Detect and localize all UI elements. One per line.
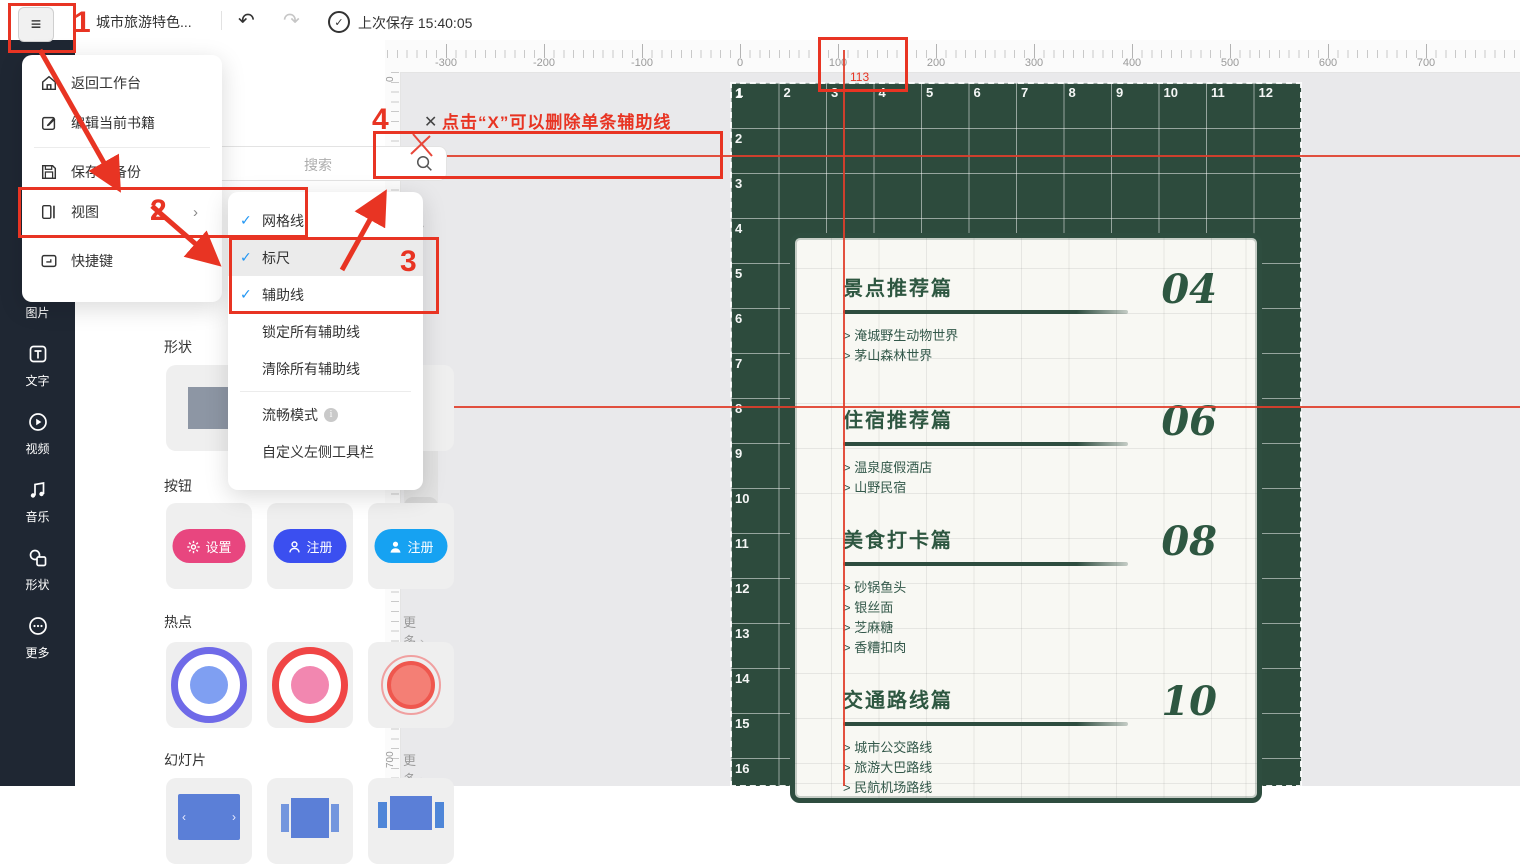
sidebar-item-3[interactable]: 音乐 — [0, 476, 75, 538]
toc-item: > 茅山森林世界 — [843, 346, 1211, 366]
ruler-label: 600 — [1319, 57, 1337, 69]
toc-section-0[interactable]: 景点推荐篇04> 淹城野生动物世界> 茅山森林世界 — [843, 272, 1211, 366]
close-icon[interactable]: ✕ — [424, 112, 437, 132]
grid-row-number: 16 — [735, 761, 749, 776]
ruler-major-tick — [1426, 44, 1427, 58]
grid-row-number: 6 — [735, 311, 742, 326]
toc-item: > 银丝面 — [843, 598, 1211, 618]
submenu-item-4[interactable]: 清除所有辅助线 — [228, 350, 423, 387]
toc-item: > 旅游大巴路线 — [843, 758, 1211, 778]
divider — [34, 147, 210, 148]
horizontal-ruler[interactable]: -300-200-1000100200300400500600700 — [385, 40, 1520, 73]
slide-thumb-3[interactable] — [368, 778, 454, 864]
grid-row-number: 7 — [735, 356, 742, 371]
brush-underline — [843, 722, 1128, 726]
edit-icon — [40, 114, 58, 132]
toc-section-title: 美食打卡篇 — [843, 524, 1211, 553]
grid-column-number: 5 — [926, 85, 933, 100]
ruler-major-tick — [838, 44, 839, 58]
poster-page[interactable]: 123456789101112 12345678910111213141516 … — [731, 83, 1301, 786]
toc-item: > 淹城野生动物世界 — [843, 326, 1211, 346]
toc-page-number: 08 — [1161, 518, 1217, 565]
toc-card[interactable]: 景点推荐篇04> 淹城野生动物世界> 茅山森林世界住宿推荐篇06> 温泉度假酒店… — [790, 233, 1262, 803]
hotspot-ring — [381, 655, 441, 715]
info-icon: i — [324, 408, 338, 422]
ruler-label: 700 — [385, 734, 397, 768]
section-label-buttons: 按钮 — [164, 476, 192, 496]
square-shape — [188, 387, 230, 429]
grid-column-number: 2 — [784, 85, 791, 100]
grid-column-number: 6 — [974, 85, 981, 100]
ruler-label: 300 — [1025, 57, 1043, 69]
grid-column-number: 7 — [1021, 85, 1028, 100]
button-thumb-2[interactable]: 注册 — [368, 503, 454, 589]
grid-row-number: 14 — [735, 671, 749, 686]
check-icon: ✓ — [240, 286, 262, 303]
toc-page-number: 04 — [1161, 266, 1217, 313]
undo-icon[interactable]: ↶ — [238, 8, 255, 33]
ruler-major-tick — [740, 44, 741, 58]
sidebar-item-label: 音乐 — [0, 508, 75, 525]
menu-item-label: 返回工作台 — [71, 73, 141, 93]
toc-section-title: 景点推荐篇 — [843, 272, 1211, 301]
keyboard-icon — [40, 252, 58, 270]
brush-underline — [843, 310, 1128, 314]
person-outline-icon — [287, 538, 301, 554]
submenu-item-0[interactable]: ✓网格线 — [228, 202, 423, 239]
divider — [221, 11, 222, 30]
ruler-major-tick — [544, 44, 545, 58]
ruler-minor-ticks — [387, 50, 1520, 58]
grid-row-number: 10 — [735, 491, 749, 506]
ruler-label: 200 — [927, 57, 945, 69]
grid-column-number: 8 — [1069, 85, 1076, 100]
submenu-item-label: 辅助线 — [262, 285, 304, 305]
music-icon — [0, 476, 75, 504]
ruler-major-tick — [936, 44, 937, 58]
video-icon — [0, 408, 75, 436]
home-icon — [40, 74, 58, 92]
divider — [240, 391, 411, 392]
chevron-right-icon: › — [193, 204, 198, 221]
submenu-item-6[interactable]: 自定义左侧工具栏 — [228, 433, 423, 470]
ruler-major-tick — [1328, 44, 1329, 58]
submenu-item-label: 网格线 — [262, 211, 304, 231]
menu-item-4[interactable]: 快捷键 — [22, 241, 222, 281]
brush-underline — [843, 442, 1128, 446]
submenu-item-label: 锁定所有辅助线 — [262, 322, 360, 342]
submenu-item-label: 自定义左侧工具栏 — [262, 442, 374, 462]
search-placeholder: 搜索 — [304, 155, 332, 175]
submenu-item-5[interactable]: 流畅模式i — [228, 396, 423, 433]
horizontal-guide-line[interactable] — [385, 406, 1520, 408]
toc-item: > 芝麻糖 — [843, 618, 1211, 638]
grid-row-number: 8 — [735, 401, 742, 416]
sidebar-item-label: 更多 — [0, 644, 75, 661]
toc-item: > 香糟扣肉 — [843, 638, 1211, 658]
submenu-item-3[interactable]: 锁定所有辅助线 — [228, 313, 423, 350]
sample-button: 注册 — [273, 529, 346, 563]
section-label-slides: 幻灯片 — [164, 750, 206, 770]
submenu-item-label: 标尺 — [262, 248, 290, 268]
submenu-item-label: 清除所有辅助线 — [262, 359, 360, 379]
grid-column-number: 10 — [1164, 85, 1178, 100]
person-icon — [388, 538, 402, 554]
menu-item-0[interactable]: 返回工作台 — [22, 63, 222, 103]
grid-column-number: 12 — [1259, 85, 1273, 100]
toc-item: > 温泉度假酒店 — [843, 458, 1211, 478]
grid-row-number: 11 — [735, 536, 749, 551]
ruler-label: -200 — [533, 57, 555, 69]
button-thumb-1[interactable]: 注册 — [267, 503, 353, 589]
document-title[interactable]: 城市旅游特色... — [96, 12, 192, 32]
ruler-label: 0 — [385, 48, 397, 82]
ruler-label: -300 — [435, 57, 457, 69]
toc-item: > 山野民宿 — [843, 478, 1211, 498]
save-icon — [40, 163, 58, 181]
hotspot-ring — [272, 647, 348, 723]
toc-item: > 砂锅鱼头 — [843, 578, 1211, 598]
toc-section-3[interactable]: 交通路线篇10> 城市公交路线> 旅游大巴路线> 民航机场路线 — [843, 684, 1211, 798]
last-saved-text: 上次保存 15:40:05 — [358, 13, 472, 33]
view-icon — [40, 203, 58, 221]
grid-row-number: 1 — [735, 86, 742, 101]
section-label-hotspots: 热点 — [164, 612, 192, 632]
menu-item-2[interactable]: 保存和备份 — [22, 152, 222, 192]
menu-item-label: 编辑当前书籍 — [71, 113, 155, 133]
gear-icon — [186, 538, 200, 554]
main-dropdown-menu: 返回工作台编辑当前书籍保存和备份视图›快捷键 — [22, 55, 222, 302]
guide-position-label: 113 — [850, 70, 869, 84]
sidebar-item-label: 形状 — [0, 576, 75, 593]
shape-icon — [0, 544, 75, 572]
menu-item-label: 保存和备份 — [71, 162, 141, 182]
sidebar-item-4[interactable]: 形状 — [0, 544, 75, 606]
hotspot-thumb-blue[interactable] — [166, 642, 252, 728]
toc-item: > 城市公交路线 — [843, 738, 1211, 758]
submenu-item-2[interactable]: ✓辅助线 — [228, 276, 423, 313]
ruler-label: 500 — [1221, 57, 1239, 69]
slide-carousel: ‹› — [178, 794, 240, 840]
search-icon — [415, 154, 434, 173]
text-icon — [0, 340, 75, 368]
ruler-label: 400 — [1123, 57, 1141, 69]
grid-row-number: 2 — [735, 131, 742, 146]
saved-check-icon: ✓ — [328, 11, 350, 33]
check-icon: ✓ — [240, 212, 262, 229]
sidebar-item-2[interactable]: 视频 — [0, 408, 75, 470]
sidebar-item-label: 视频 — [0, 440, 75, 457]
grid-column-number: 4 — [879, 85, 886, 100]
menu-item-label: 快捷键 — [71, 251, 113, 271]
sample-button: 注册 — [374, 529, 447, 563]
redo-icon[interactable]: ↷ — [283, 8, 300, 33]
slide-thumb-2[interactable] — [267, 778, 353, 864]
toc-section-title: 住宿推荐篇 — [843, 404, 1211, 433]
toc-section-1[interactable]: 住宿推荐篇06> 温泉度假酒店> 山野民宿 — [843, 404, 1211, 498]
sidebar-item-label: 图片 — [0, 304, 75, 321]
grid-row-number: 15 — [735, 716, 749, 731]
ruler-major-tick — [1230, 44, 1231, 58]
brush-underline — [843, 562, 1128, 566]
sample-button: 设置 — [172, 529, 245, 563]
sidebar-item-5[interactable]: 更多 — [0, 612, 75, 674]
hotspot-thumb-salmon[interactable] — [368, 642, 454, 728]
menu-item-1[interactable]: 编辑当前书籍 — [22, 103, 222, 143]
vertical-guide-line[interactable] — [843, 50, 845, 786]
ruler-label: 700 — [1417, 57, 1435, 69]
submenu-item-label: 流畅模式 — [262, 405, 318, 425]
grid-row-number: 9 — [735, 446, 742, 461]
grid-row-number: 3 — [735, 176, 742, 191]
ruler-label: -100 — [631, 57, 653, 69]
toc-page-number: 10 — [1161, 678, 1217, 725]
divider — [34, 236, 210, 237]
horizontal-guide-line[interactable] — [385, 155, 1520, 157]
more-icon — [0, 612, 75, 640]
menu-item-3[interactable]: 视图› — [22, 192, 222, 232]
grid-column-number: 9 — [1116, 85, 1123, 100]
top-toolbar: ≡ 城市旅游特色... ↶ ↷ ✓ 上次保存 15:40:05 — [0, 0, 1520, 40]
ruler-major-tick — [446, 44, 447, 58]
submenu-item-1[interactable]: ✓标尺 — [228, 239, 423, 276]
ruler-major-tick — [642, 44, 643, 58]
menu-item-label: 视图 — [71, 202, 99, 222]
sidebar-item-1[interactable]: 文字 — [0, 340, 75, 402]
toc-item: > 民航机场路线 — [843, 778, 1211, 798]
button-thumb-0[interactable]: 设置 — [166, 503, 252, 589]
view-submenu: ✓网格线✓标尺✓辅助线锁定所有辅助线清除所有辅助线流畅模式i自定义左侧工具栏 — [228, 192, 423, 490]
grid-column-number: 11 — [1211, 85, 1225, 100]
ruler-major-tick — [1034, 44, 1035, 58]
annotation-tip-text: 点击“X”可以删除单条辅助线 — [442, 108, 671, 133]
section-label-shapes: 形状 — [164, 337, 192, 357]
slide-thumb-1[interactable]: ‹› — [166, 778, 252, 864]
hotspot-thumb-red[interactable] — [267, 642, 353, 728]
grid-column-number: 3 — [831, 85, 838, 100]
sidebar-item-label: 文字 — [0, 372, 75, 389]
toc-section-title: 交通路线篇 — [843, 684, 1211, 713]
grid-row-number: 12 — [735, 581, 749, 596]
check-icon: ✓ — [240, 249, 262, 266]
ruler-major-tick — [1132, 44, 1133, 58]
hamburger-menu-button[interactable]: ≡ — [18, 7, 54, 42]
toc-section-2[interactable]: 美食打卡篇08> 砂锅鱼头> 银丝面> 芝麻糖> 香糟扣肉 — [843, 524, 1211, 658]
grid-row-number: 13 — [735, 626, 749, 641]
hotspot-ring — [171, 647, 247, 723]
ruler-label: 0 — [737, 57, 743, 69]
